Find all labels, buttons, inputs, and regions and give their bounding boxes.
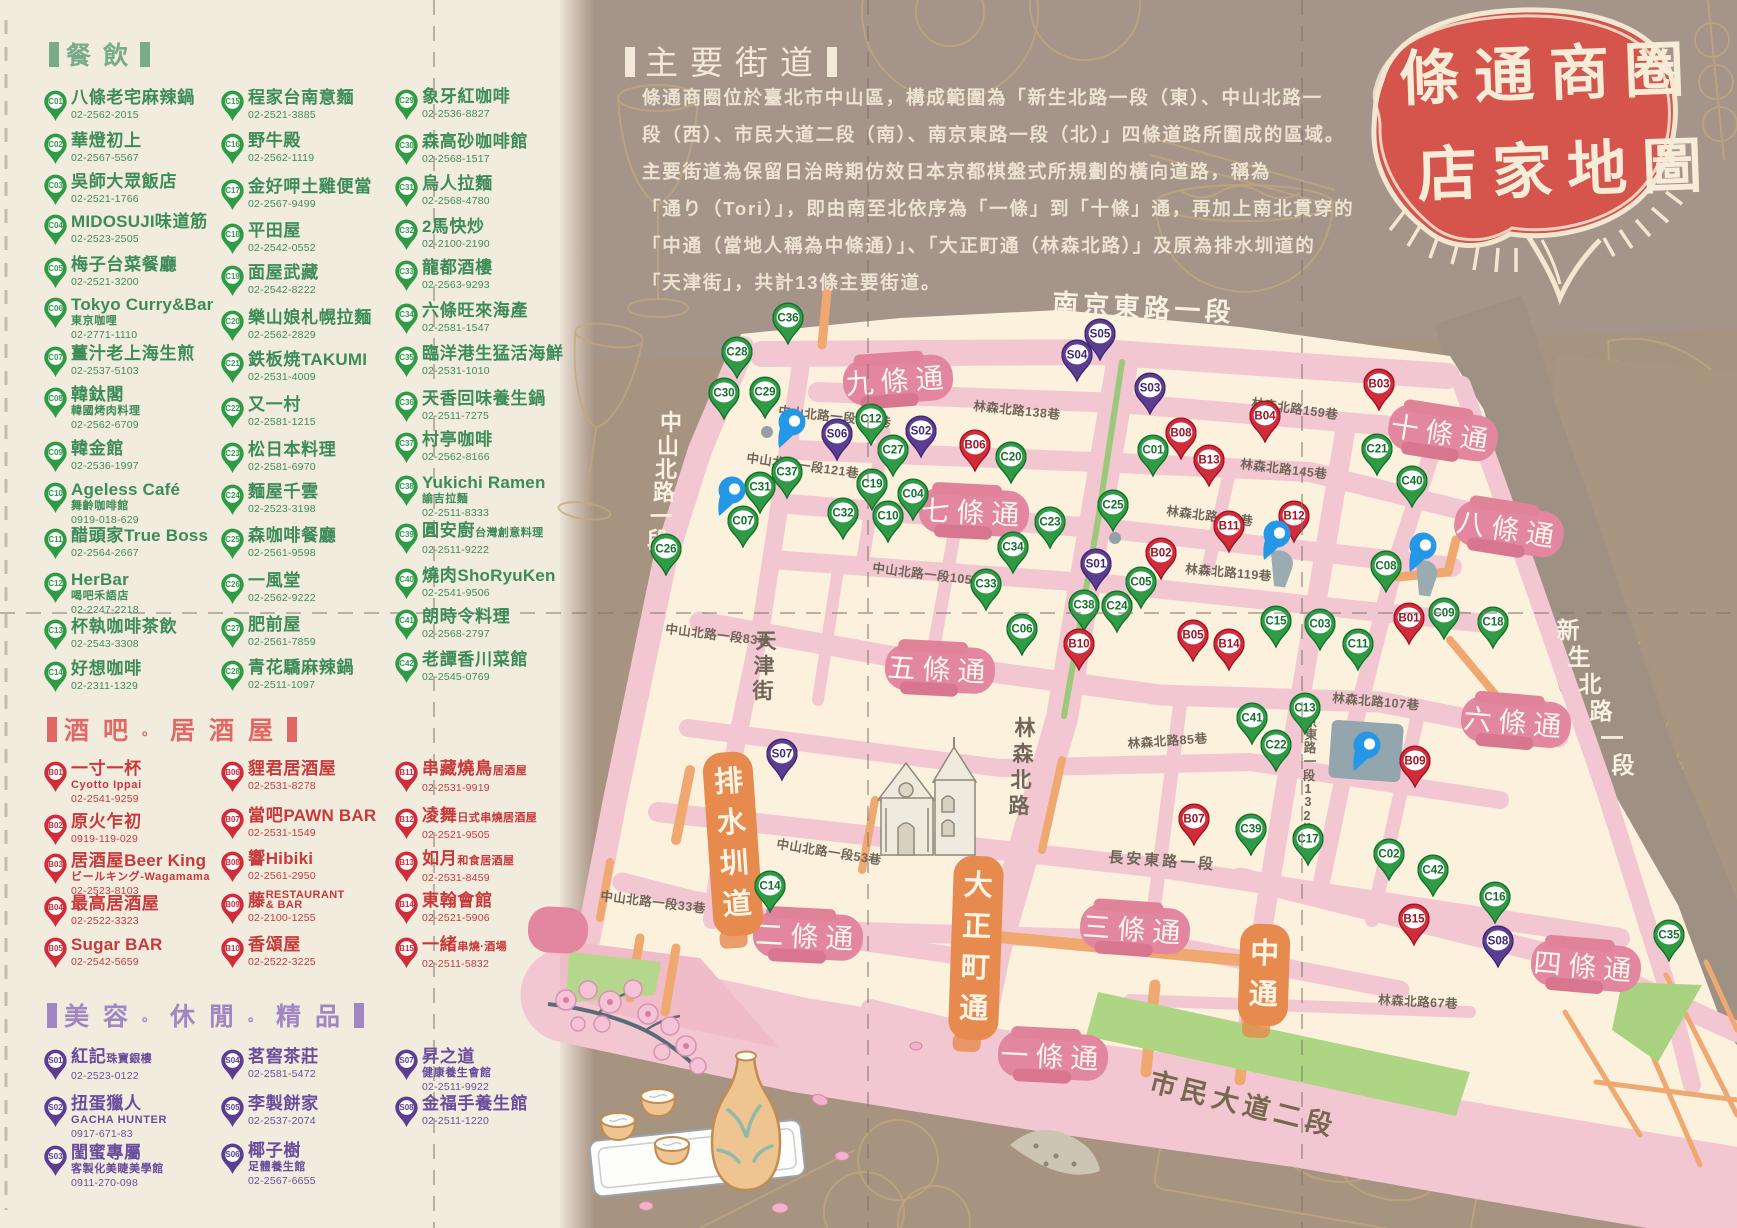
svg-text:C39: C39 bbox=[399, 530, 414, 539]
svg-text:S08: S08 bbox=[399, 1103, 414, 1112]
svg-text:C09: C09 bbox=[48, 448, 63, 457]
svg-text:路: 路 bbox=[1009, 794, 1031, 818]
svg-text:C01: C01 bbox=[48, 97, 63, 106]
svg-text:林: 林 bbox=[1015, 716, 1036, 740]
svg-text:S03: S03 bbox=[1140, 382, 1161, 395]
svg-text:北: 北 bbox=[1579, 671, 1602, 697]
svg-text:中: 中 bbox=[660, 410, 682, 435]
svg-text:C27: C27 bbox=[225, 624, 240, 633]
svg-text:C02: C02 bbox=[48, 140, 63, 149]
svg-text:C03: C03 bbox=[48, 181, 63, 190]
svg-text:C38: C38 bbox=[399, 482, 414, 491]
svg-text:S05: S05 bbox=[225, 1103, 240, 1112]
svg-text:C07: C07 bbox=[48, 353, 63, 362]
svg-text:B15: B15 bbox=[1403, 913, 1425, 926]
svg-text:C24: C24 bbox=[1106, 600, 1128, 613]
svg-text:C36: C36 bbox=[399, 398, 414, 407]
svg-text:C29: C29 bbox=[399, 96, 414, 105]
svg-text:生: 生 bbox=[1568, 644, 1591, 670]
svg-text:山: 山 bbox=[657, 434, 679, 459]
svg-text:二條通: 二條通 bbox=[755, 919, 861, 955]
svg-text:路: 路 bbox=[653, 480, 676, 505]
svg-text:C32: C32 bbox=[399, 226, 414, 235]
svg-text:路: 路 bbox=[1304, 740, 1317, 755]
svg-text:正: 正 bbox=[962, 911, 992, 944]
svg-text:S07: S07 bbox=[399, 1056, 414, 1065]
svg-text:S05: S05 bbox=[1090, 328, 1111, 341]
svg-text:S03: S03 bbox=[48, 1152, 63, 1161]
svg-text:C40: C40 bbox=[1401, 475, 1422, 488]
svg-text:1: 1 bbox=[1305, 782, 1312, 796]
svg-text:北: 北 bbox=[1011, 769, 1032, 792]
svg-text:S02: S02 bbox=[48, 1103, 63, 1112]
svg-text:C27: C27 bbox=[882, 444, 903, 457]
svg-text:C05: C05 bbox=[48, 264, 63, 273]
svg-text:C06: C06 bbox=[1011, 623, 1033, 636]
svg-text:通: 通 bbox=[959, 992, 989, 1025]
svg-text:S04: S04 bbox=[1067, 349, 1088, 362]
svg-text:B13: B13 bbox=[1198, 454, 1220, 467]
svg-text:C32: C32 bbox=[832, 507, 853, 520]
svg-text:C35: C35 bbox=[1658, 929, 1680, 942]
svg-text:C28: C28 bbox=[225, 667, 240, 676]
svg-text:中: 中 bbox=[1250, 937, 1280, 971]
svg-text:B08: B08 bbox=[1170, 427, 1192, 440]
svg-text:一條通: 一條通 bbox=[1000, 1039, 1106, 1075]
svg-text:C37: C37 bbox=[399, 439, 414, 448]
svg-text:C13: C13 bbox=[48, 626, 63, 635]
svg-text:町: 町 bbox=[960, 951, 990, 984]
svg-text:C02: C02 bbox=[1378, 848, 1399, 861]
svg-text:C03: C03 bbox=[1309, 618, 1331, 631]
svg-text:C01: C01 bbox=[1142, 444, 1164, 457]
svg-text:新: 新 bbox=[1557, 617, 1580, 643]
svg-text:C24: C24 bbox=[225, 491, 240, 500]
svg-text:B09: B09 bbox=[1404, 755, 1426, 768]
svg-text:S08: S08 bbox=[1488, 935, 1509, 948]
svg-text:B06: B06 bbox=[225, 768, 240, 777]
svg-text:段: 段 bbox=[1612, 752, 1635, 778]
svg-text:C21: C21 bbox=[1366, 443, 1388, 456]
svg-text:C34: C34 bbox=[1002, 541, 1024, 554]
svg-text:B03: B03 bbox=[48, 860, 63, 869]
svg-text:C08: C08 bbox=[1375, 560, 1397, 573]
svg-text:S01: S01 bbox=[48, 1056, 63, 1065]
svg-text:C37: C37 bbox=[776, 466, 797, 479]
svg-text:C31: C31 bbox=[399, 183, 414, 192]
svg-text:C16: C16 bbox=[1484, 891, 1506, 904]
svg-text:道: 道 bbox=[722, 887, 753, 922]
svg-text:S06: S06 bbox=[827, 428, 848, 441]
svg-text:C12: C12 bbox=[860, 413, 881, 426]
svg-text:B12: B12 bbox=[399, 815, 414, 824]
svg-text:B02: B02 bbox=[1150, 547, 1171, 560]
svg-text:2: 2 bbox=[1304, 809, 1311, 823]
svg-text:C14: C14 bbox=[48, 668, 63, 677]
svg-text:B11: B11 bbox=[1219, 520, 1240, 533]
svg-text:B09: B09 bbox=[225, 900, 240, 909]
svg-text:C19: C19 bbox=[861, 478, 883, 491]
svg-text:C42: C42 bbox=[1422, 864, 1443, 877]
svg-text:B05: B05 bbox=[1182, 629, 1204, 642]
svg-text:圳: 圳 bbox=[719, 846, 750, 881]
svg-text:大: 大 bbox=[963, 869, 993, 903]
svg-text:B07: B07 bbox=[225, 815, 240, 824]
svg-text:C20: C20 bbox=[225, 317, 240, 326]
svg-text:B02: B02 bbox=[48, 821, 63, 830]
svg-text:街: 街 bbox=[752, 679, 774, 703]
svg-text:C11: C11 bbox=[1348, 638, 1369, 651]
svg-text:C15: C15 bbox=[1265, 615, 1287, 628]
svg-text:B06: B06 bbox=[964, 439, 986, 452]
svg-text:C16: C16 bbox=[225, 140, 240, 149]
svg-text:C17: C17 bbox=[225, 186, 240, 195]
svg-text:B13: B13 bbox=[399, 858, 414, 867]
svg-text:B15: B15 bbox=[399, 944, 414, 953]
svg-text:一: 一 bbox=[650, 504, 672, 529]
svg-text:津: 津 bbox=[754, 655, 775, 678]
svg-text:B10: B10 bbox=[1068, 638, 1089, 651]
svg-text:段: 段 bbox=[1303, 768, 1316, 783]
svg-text:C22: C22 bbox=[225, 404, 240, 413]
svg-text:3: 3 bbox=[1305, 795, 1312, 809]
svg-text:B01: B01 bbox=[48, 768, 63, 777]
svg-text:水: 水 bbox=[716, 805, 748, 840]
svg-text:C14: C14 bbox=[759, 880, 781, 893]
svg-text:C26: C26 bbox=[225, 580, 240, 589]
svg-text:一: 一 bbox=[1304, 755, 1317, 769]
svg-text:C04: C04 bbox=[902, 488, 924, 501]
svg-text:C34: C34 bbox=[399, 310, 414, 319]
svg-text:B14: B14 bbox=[1218, 638, 1240, 651]
svg-text:C25: C25 bbox=[225, 535, 240, 544]
svg-text:排: 排 bbox=[713, 764, 744, 799]
svg-text:C21: C21 bbox=[225, 359, 240, 368]
svg-text:C23: C23 bbox=[225, 449, 240, 458]
svg-text:通: 通 bbox=[1248, 978, 1278, 1011]
svg-text:C31: C31 bbox=[749, 481, 771, 494]
svg-text:C26: C26 bbox=[655, 543, 677, 556]
svg-text:C18: C18 bbox=[225, 230, 240, 239]
svg-text:店家地圖: 店家地圖 bbox=[1416, 132, 1718, 209]
svg-text:C33: C33 bbox=[399, 267, 414, 276]
svg-text:S04: S04 bbox=[225, 1056, 240, 1065]
svg-text:C19: C19 bbox=[225, 272, 240, 281]
svg-text:C08: C08 bbox=[48, 394, 63, 403]
svg-text:C05: C05 bbox=[1130, 576, 1152, 589]
svg-text:C06: C06 bbox=[48, 304, 63, 313]
svg-text:森: 森 bbox=[1013, 743, 1035, 766]
svg-text:北: 北 bbox=[655, 457, 677, 482]
svg-text:C29: C29 bbox=[754, 386, 776, 399]
svg-text:七條通: 七條通 bbox=[921, 495, 1027, 531]
svg-text:S01: S01 bbox=[1086, 558, 1107, 571]
svg-text:一: 一 bbox=[1601, 725, 1624, 751]
svg-text:C10: C10 bbox=[877, 510, 898, 523]
svg-text:B03: B03 bbox=[1368, 378, 1390, 391]
svg-text:C13: C13 bbox=[1294, 702, 1316, 715]
svg-text:C41: C41 bbox=[399, 616, 414, 625]
svg-text:C25: C25 bbox=[1102, 499, 1124, 512]
svg-text:C11: C11 bbox=[48, 535, 63, 544]
svg-text:條通商圈: 條通商圈 bbox=[1398, 36, 1700, 113]
svg-text:C30: C30 bbox=[713, 387, 734, 400]
svg-text:B08: B08 bbox=[225, 858, 240, 867]
svg-text:B04: B04 bbox=[48, 903, 63, 912]
svg-text:C40: C40 bbox=[399, 575, 414, 584]
svg-text:C42: C42 bbox=[399, 659, 414, 668]
svg-text:C22: C22 bbox=[1265, 739, 1286, 752]
svg-text:C17: C17 bbox=[1297, 833, 1318, 846]
svg-text:五條通: 五條通 bbox=[887, 652, 993, 688]
svg-text:C41: C41 bbox=[1241, 712, 1263, 725]
svg-text:C10: C10 bbox=[48, 489, 63, 498]
svg-text:C28: C28 bbox=[726, 346, 748, 359]
svg-text:路: 路 bbox=[1590, 698, 1614, 724]
svg-text:C18: C18 bbox=[1482, 616, 1504, 629]
svg-text:B11: B11 bbox=[399, 768, 414, 777]
svg-text:C20: C20 bbox=[1000, 451, 1021, 464]
svg-text:C15: C15 bbox=[225, 97, 240, 106]
svg-text:B14: B14 bbox=[399, 900, 414, 909]
svg-text:B04: B04 bbox=[1254, 410, 1276, 423]
svg-text:C33: C33 bbox=[975, 578, 997, 591]
svg-text:S06: S06 bbox=[225, 1150, 240, 1159]
svg-text:S07: S07 bbox=[772, 748, 793, 761]
svg-text:C36: C36 bbox=[777, 312, 799, 325]
svg-text:C30: C30 bbox=[399, 141, 414, 150]
svg-text:S02: S02 bbox=[911, 425, 932, 438]
svg-text:天: 天 bbox=[756, 630, 778, 653]
svg-text:C39: C39 bbox=[1240, 823, 1262, 836]
svg-text:C07: C07 bbox=[732, 515, 753, 528]
svg-text:C12: C12 bbox=[48, 579, 63, 588]
svg-text:C04: C04 bbox=[48, 221, 63, 230]
svg-text:C35: C35 bbox=[399, 353, 414, 362]
svg-text:C23: C23 bbox=[1039, 516, 1061, 529]
svg-text:B10: B10 bbox=[225, 944, 240, 953]
svg-text:B07: B07 bbox=[1183, 813, 1204, 826]
svg-text:B05: B05 bbox=[48, 944, 63, 953]
svg-text:C38: C38 bbox=[1073, 599, 1095, 612]
